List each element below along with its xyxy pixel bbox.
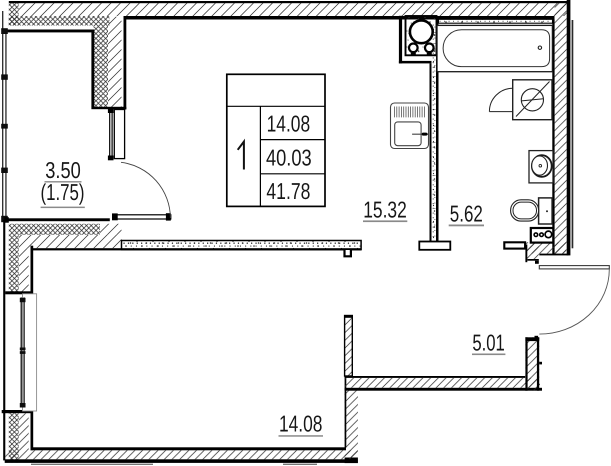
svg-text:5.62: 5.62 [450, 201, 483, 227]
svg-text:15.32: 15.32 [363, 197, 407, 223]
svg-text:14.08: 14.08 [267, 110, 311, 136]
svg-text:40.03: 40.03 [266, 144, 312, 170]
svg-text:(1.75): (1.75) [41, 179, 85, 205]
svg-text:41.78: 41.78 [266, 178, 310, 204]
svg-text:5.01: 5.01 [472, 329, 505, 355]
svg-text:14.08: 14.08 [279, 411, 323, 437]
